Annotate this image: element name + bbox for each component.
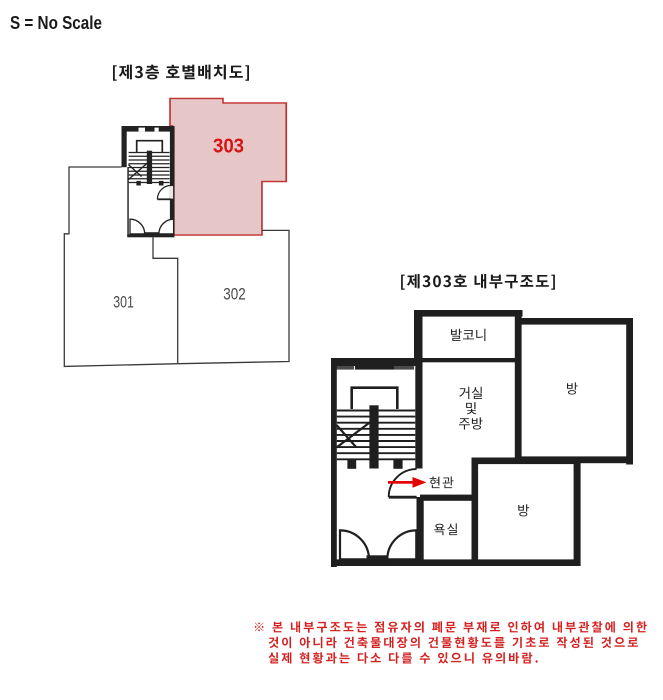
svg-text:303: 303 <box>213 135 244 158</box>
svg-text:301: 301 <box>113 293 134 312</box>
svg-text:S = No Scale: S = No Scale <box>10 12 102 33</box>
svg-text:302: 302 <box>223 285 245 304</box>
